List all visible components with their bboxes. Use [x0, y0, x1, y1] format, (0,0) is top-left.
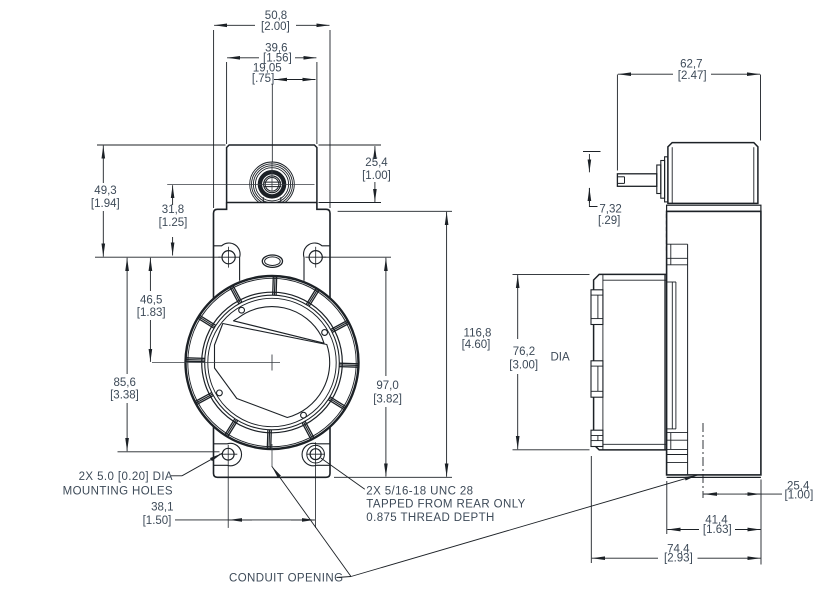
- svg-text:7,32: 7,32: [599, 204, 621, 216]
- svg-text:[.75]: [.75]: [252, 73, 274, 85]
- svg-text:[1.83]: [1.83]: [137, 307, 166, 319]
- svg-text:[1.50]: [1.50]: [143, 515, 172, 527]
- svg-text:2X 5/16-18 UNC 28: 2X 5/16-18 UNC 28: [366, 485, 473, 497]
- svg-text:[3.00]: [3.00]: [509, 360, 538, 372]
- svg-text:[1.00]: [1.00]: [785, 490, 814, 502]
- svg-text:38,1: 38,1: [151, 502, 173, 514]
- svg-text:MOUNTING HOLES: MOUNTING HOLES: [63, 485, 173, 497]
- svg-text:[1.25]: [1.25]: [159, 217, 188, 229]
- svg-text:[2.93]: [2.93]: [664, 553, 693, 565]
- svg-text:50,8: 50,8: [265, 10, 287, 22]
- svg-text:97,0: 97,0: [376, 380, 398, 392]
- svg-text:[3.38]: [3.38]: [110, 389, 139, 401]
- svg-text:[1.00]: [1.00]: [362, 170, 391, 182]
- svg-text:TAPPED FROM REAR ONLY: TAPPED FROM REAR ONLY: [366, 499, 525, 511]
- svg-text:25,4: 25,4: [365, 157, 388, 169]
- svg-text:31,8: 31,8: [162, 204, 184, 216]
- svg-text:[2.47]: [2.47]: [678, 70, 707, 82]
- svg-text:[1.94]: [1.94]: [91, 198, 120, 210]
- svg-text:DIA: DIA: [551, 352, 571, 364]
- svg-text:116,8: 116,8: [464, 327, 492, 339]
- svg-text:85,6: 85,6: [114, 377, 136, 389]
- svg-text:46,5: 46,5: [140, 295, 162, 307]
- svg-text:[.29]: [.29]: [598, 215, 620, 227]
- svg-text:[4.60]: [4.60]: [462, 339, 491, 351]
- svg-text:49,3: 49,3: [94, 185, 116, 197]
- svg-text:0.875 THREAD DEPTH: 0.875 THREAD DEPTH: [366, 512, 494, 524]
- svg-text:[1.63]: [1.63]: [703, 524, 732, 536]
- svg-text:[2.00]: [2.00]: [261, 21, 290, 33]
- svg-text:CONDUIT OPENING: CONDUIT OPENING: [229, 573, 343, 585]
- svg-text:62,7: 62,7: [680, 59, 702, 71]
- svg-text:2X 5.0 [0.20] DIA: 2X 5.0 [0.20] DIA: [79, 471, 173, 483]
- svg-text:76,2: 76,2: [513, 346, 535, 358]
- svg-text:[3.82]: [3.82]: [373, 393, 402, 405]
